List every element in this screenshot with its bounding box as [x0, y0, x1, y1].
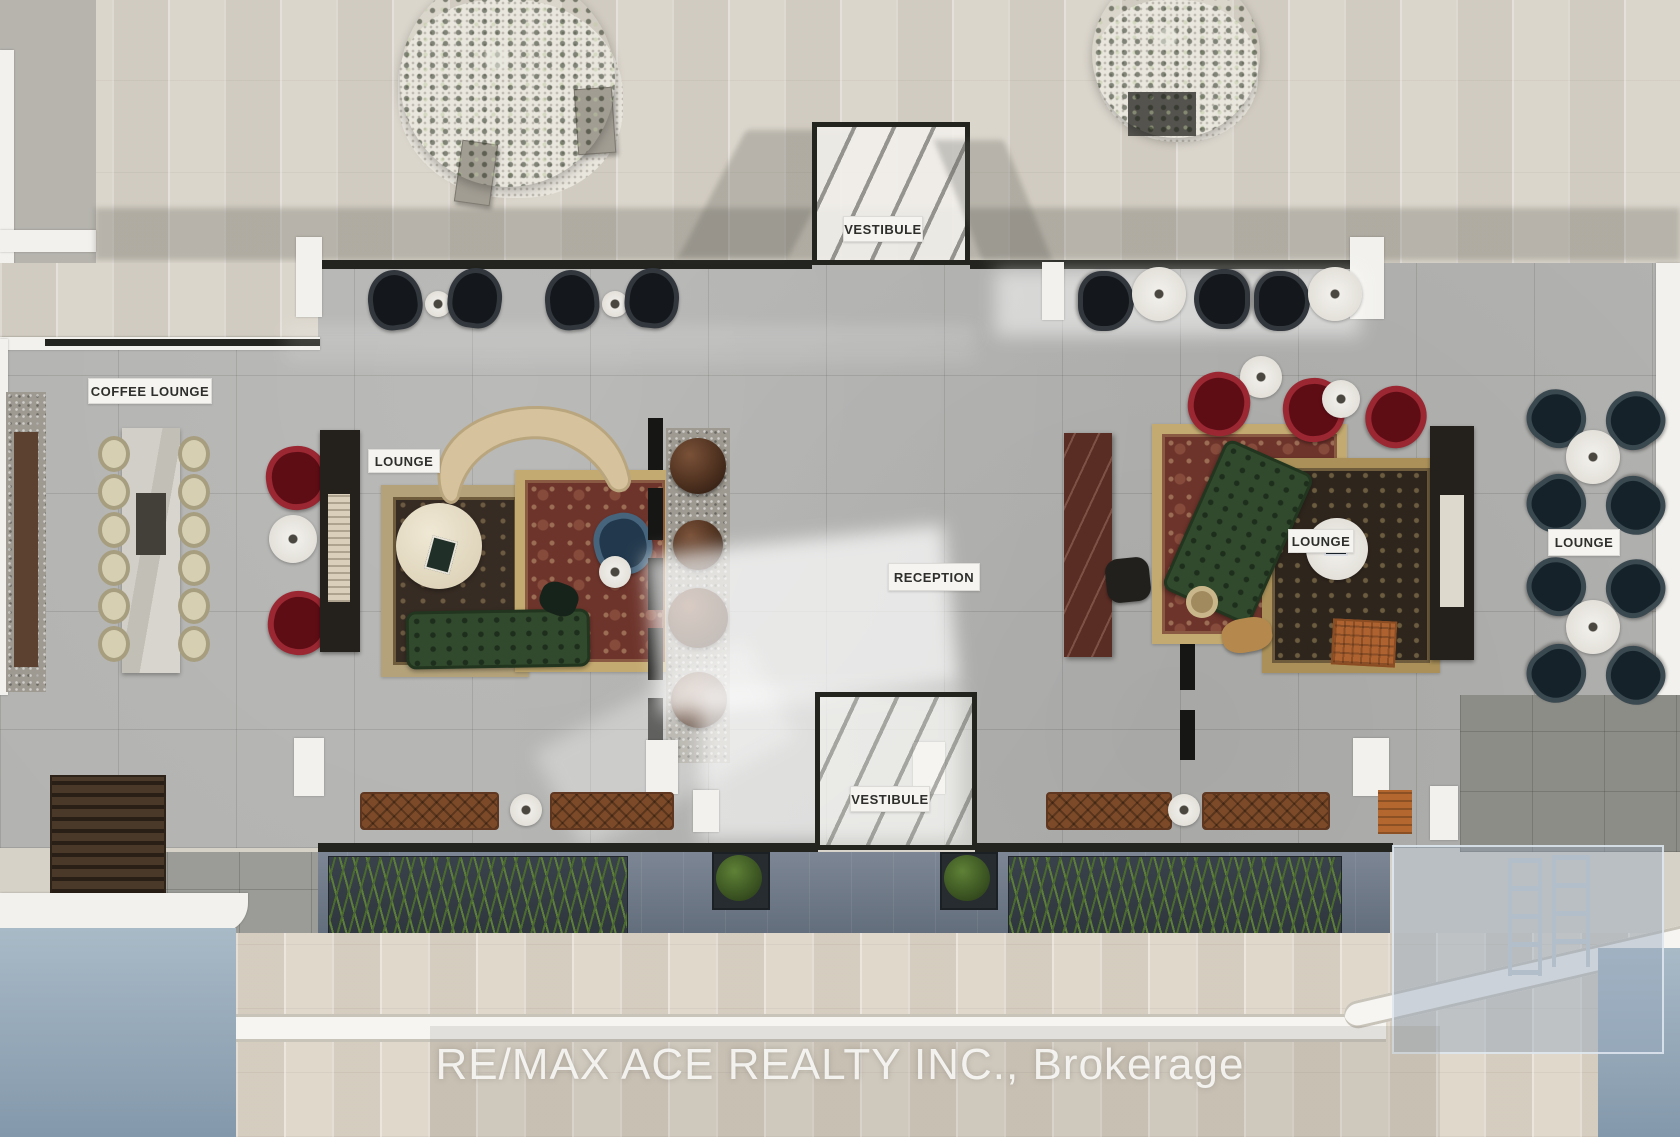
bottom-glazing-left — [318, 843, 818, 852]
vestibule-bottom-label: VESTIBULE — [850, 786, 930, 812]
curved-sofa — [429, 393, 634, 513]
floor-plan-rendering: VESTIBULE COFFEE LOUNGE LOUNGE — [0, 0, 1680, 1137]
slat-screen-segment — [1180, 710, 1195, 760]
orange-ottoman — [1331, 618, 1397, 667]
round-table — [1566, 430, 1620, 484]
stool — [98, 474, 130, 510]
slat-screen-segment — [648, 418, 663, 470]
wall-pier — [646, 740, 678, 794]
watermark-text: RE/MAX ACE REALTY INC., Brokerage — [240, 1032, 1440, 1098]
lounge-far-right-label: LOUNGE — [1548, 529, 1620, 556]
right-outdoor-pavers — [1460, 695, 1680, 852]
left-terrace-extension — [0, 263, 318, 337]
top-left-wall-band — [0, 230, 96, 252]
stool — [98, 512, 130, 548]
window-table — [1132, 267, 1186, 321]
tufted-bench — [360, 792, 499, 830]
wall-pillar — [1430, 786, 1458, 840]
wall-pier — [1042, 262, 1064, 320]
stool — [98, 550, 130, 586]
top-glazing-left — [318, 260, 812, 269]
wall-pillar — [693, 790, 719, 832]
lounge-left-label: LOUNGE — [368, 449, 440, 473]
reception-desk — [1064, 433, 1112, 657]
console-runner — [1440, 495, 1464, 607]
wicker-basket — [1186, 586, 1218, 618]
round-side-table — [1168, 794, 1200, 826]
coffee-counter-wood-top — [14, 432, 38, 667]
window-chair — [1078, 271, 1134, 331]
decor-vase — [670, 438, 726, 494]
reception-chair — [1104, 556, 1152, 604]
wall-pier — [1353, 738, 1389, 796]
vestibule-canopy-mullions — [820, 697, 972, 845]
stool — [178, 626, 210, 662]
stool — [178, 436, 210, 472]
round-shrub — [944, 855, 990, 901]
pool-curb — [0, 893, 248, 933]
window-chair — [1254, 271, 1310, 331]
round-shrub — [716, 855, 762, 901]
orange-bench — [1378, 790, 1412, 834]
tufted-bench — [1202, 792, 1330, 830]
stool — [178, 550, 210, 586]
coffee-lounge-lintel — [45, 339, 320, 346]
green-tufted-sofa — [406, 608, 591, 669]
stool — [178, 474, 210, 510]
communal-table-runner — [136, 493, 166, 555]
slat-screen-segment — [648, 488, 663, 540]
round-side-table — [510, 794, 542, 826]
round-table — [1566, 600, 1620, 654]
sunlight-streak — [285, 331, 975, 338]
round-side-table — [599, 556, 631, 588]
bottom-glazing-right — [975, 843, 1393, 852]
reception-label: RECEPTION — [888, 563, 980, 591]
tufted-bench — [1046, 792, 1172, 830]
slat-screen-segment — [1180, 640, 1195, 690]
vestibule-top-label: VESTIBULE — [843, 216, 923, 242]
stool — [178, 512, 210, 548]
coffee-lounge-label: COFFEE LOUNGE — [88, 378, 212, 404]
lounge-right-label: LOUNGE — [1288, 529, 1354, 553]
round-side-table — [269, 515, 317, 563]
stool — [98, 626, 130, 662]
stool — [98, 436, 130, 472]
tufted-bench — [550, 792, 674, 830]
vestibule-bottom-canopy-frame — [815, 692, 977, 850]
glass-canopy — [1392, 845, 1664, 1054]
stool — [98, 588, 130, 624]
window-table — [1308, 267, 1362, 321]
sunlight-streak — [285, 351, 975, 357]
round-side-table — [1322, 380, 1360, 418]
wall-pier — [296, 237, 322, 317]
pergola — [50, 775, 166, 907]
wall-pier — [294, 738, 324, 796]
window-chair — [1194, 269, 1250, 329]
pool-left — [0, 928, 236, 1137]
stool — [178, 588, 210, 624]
console-runner — [328, 494, 350, 602]
